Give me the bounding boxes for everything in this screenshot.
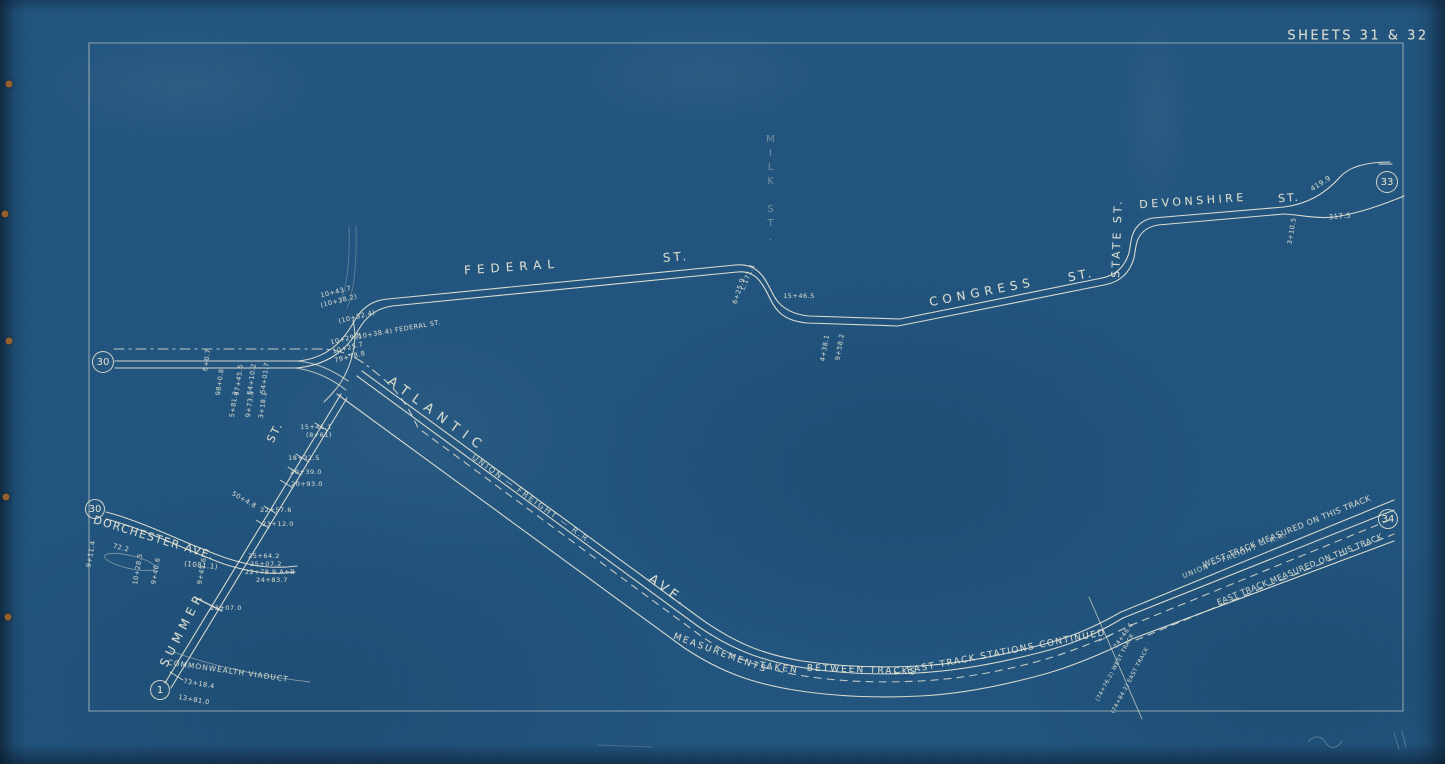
station-label: 20+93.0: [291, 481, 323, 488]
blueprint-sheet: SHEETS 31 & 32: [0, 0, 1445, 764]
station-label: 15+46.5: [783, 293, 815, 300]
station-label: 22+78.9 A+B: [245, 569, 295, 576]
track-loop: [103, 550, 157, 574]
sheet-connector-34: 34: [1378, 509, 1398, 529]
rust-binding-dot: [6, 338, 13, 345]
street-label: ST.: [662, 250, 689, 264]
rust-binding-dot: [3, 494, 10, 501]
rust-binding-dot: [6, 81, 13, 88]
sheet-connector-30: 30: [92, 351, 114, 373]
station-label: 18+32.5: [288, 455, 320, 462]
rust-binding-dot: [2, 211, 9, 218]
station-label: 23+12.0: [262, 521, 294, 528]
station-label: 25+07.2: [250, 561, 282, 568]
station-label: 15+41.1: [300, 424, 332, 431]
federal-congress-state-devonshire-tracks: [388, 162, 1404, 326]
station-label: 22+57.6: [260, 507, 292, 514]
station-label: 20+39.0: [290, 469, 322, 476]
station-label: 24+83.7: [256, 577, 288, 584]
street-label: MILK ST.: [765, 134, 775, 246]
station-label: (8+61): [306, 432, 332, 439]
station-label: 23+07.0: [210, 605, 242, 612]
sheet-connector-33: 33: [1376, 171, 1398, 193]
sheet-connector-30: 30: [85, 499, 105, 519]
sheet-connector-1: 1: [150, 680, 170, 700]
rust-binding-dot: [5, 614, 12, 621]
street-label: STATE ST.: [1110, 198, 1124, 278]
union-freight-rr-track: [374, 371, 1392, 682]
pencil-scribbles: [598, 731, 1406, 749]
street-label: ST.: [1278, 192, 1301, 205]
station-label: 25+64.2: [248, 553, 280, 560]
